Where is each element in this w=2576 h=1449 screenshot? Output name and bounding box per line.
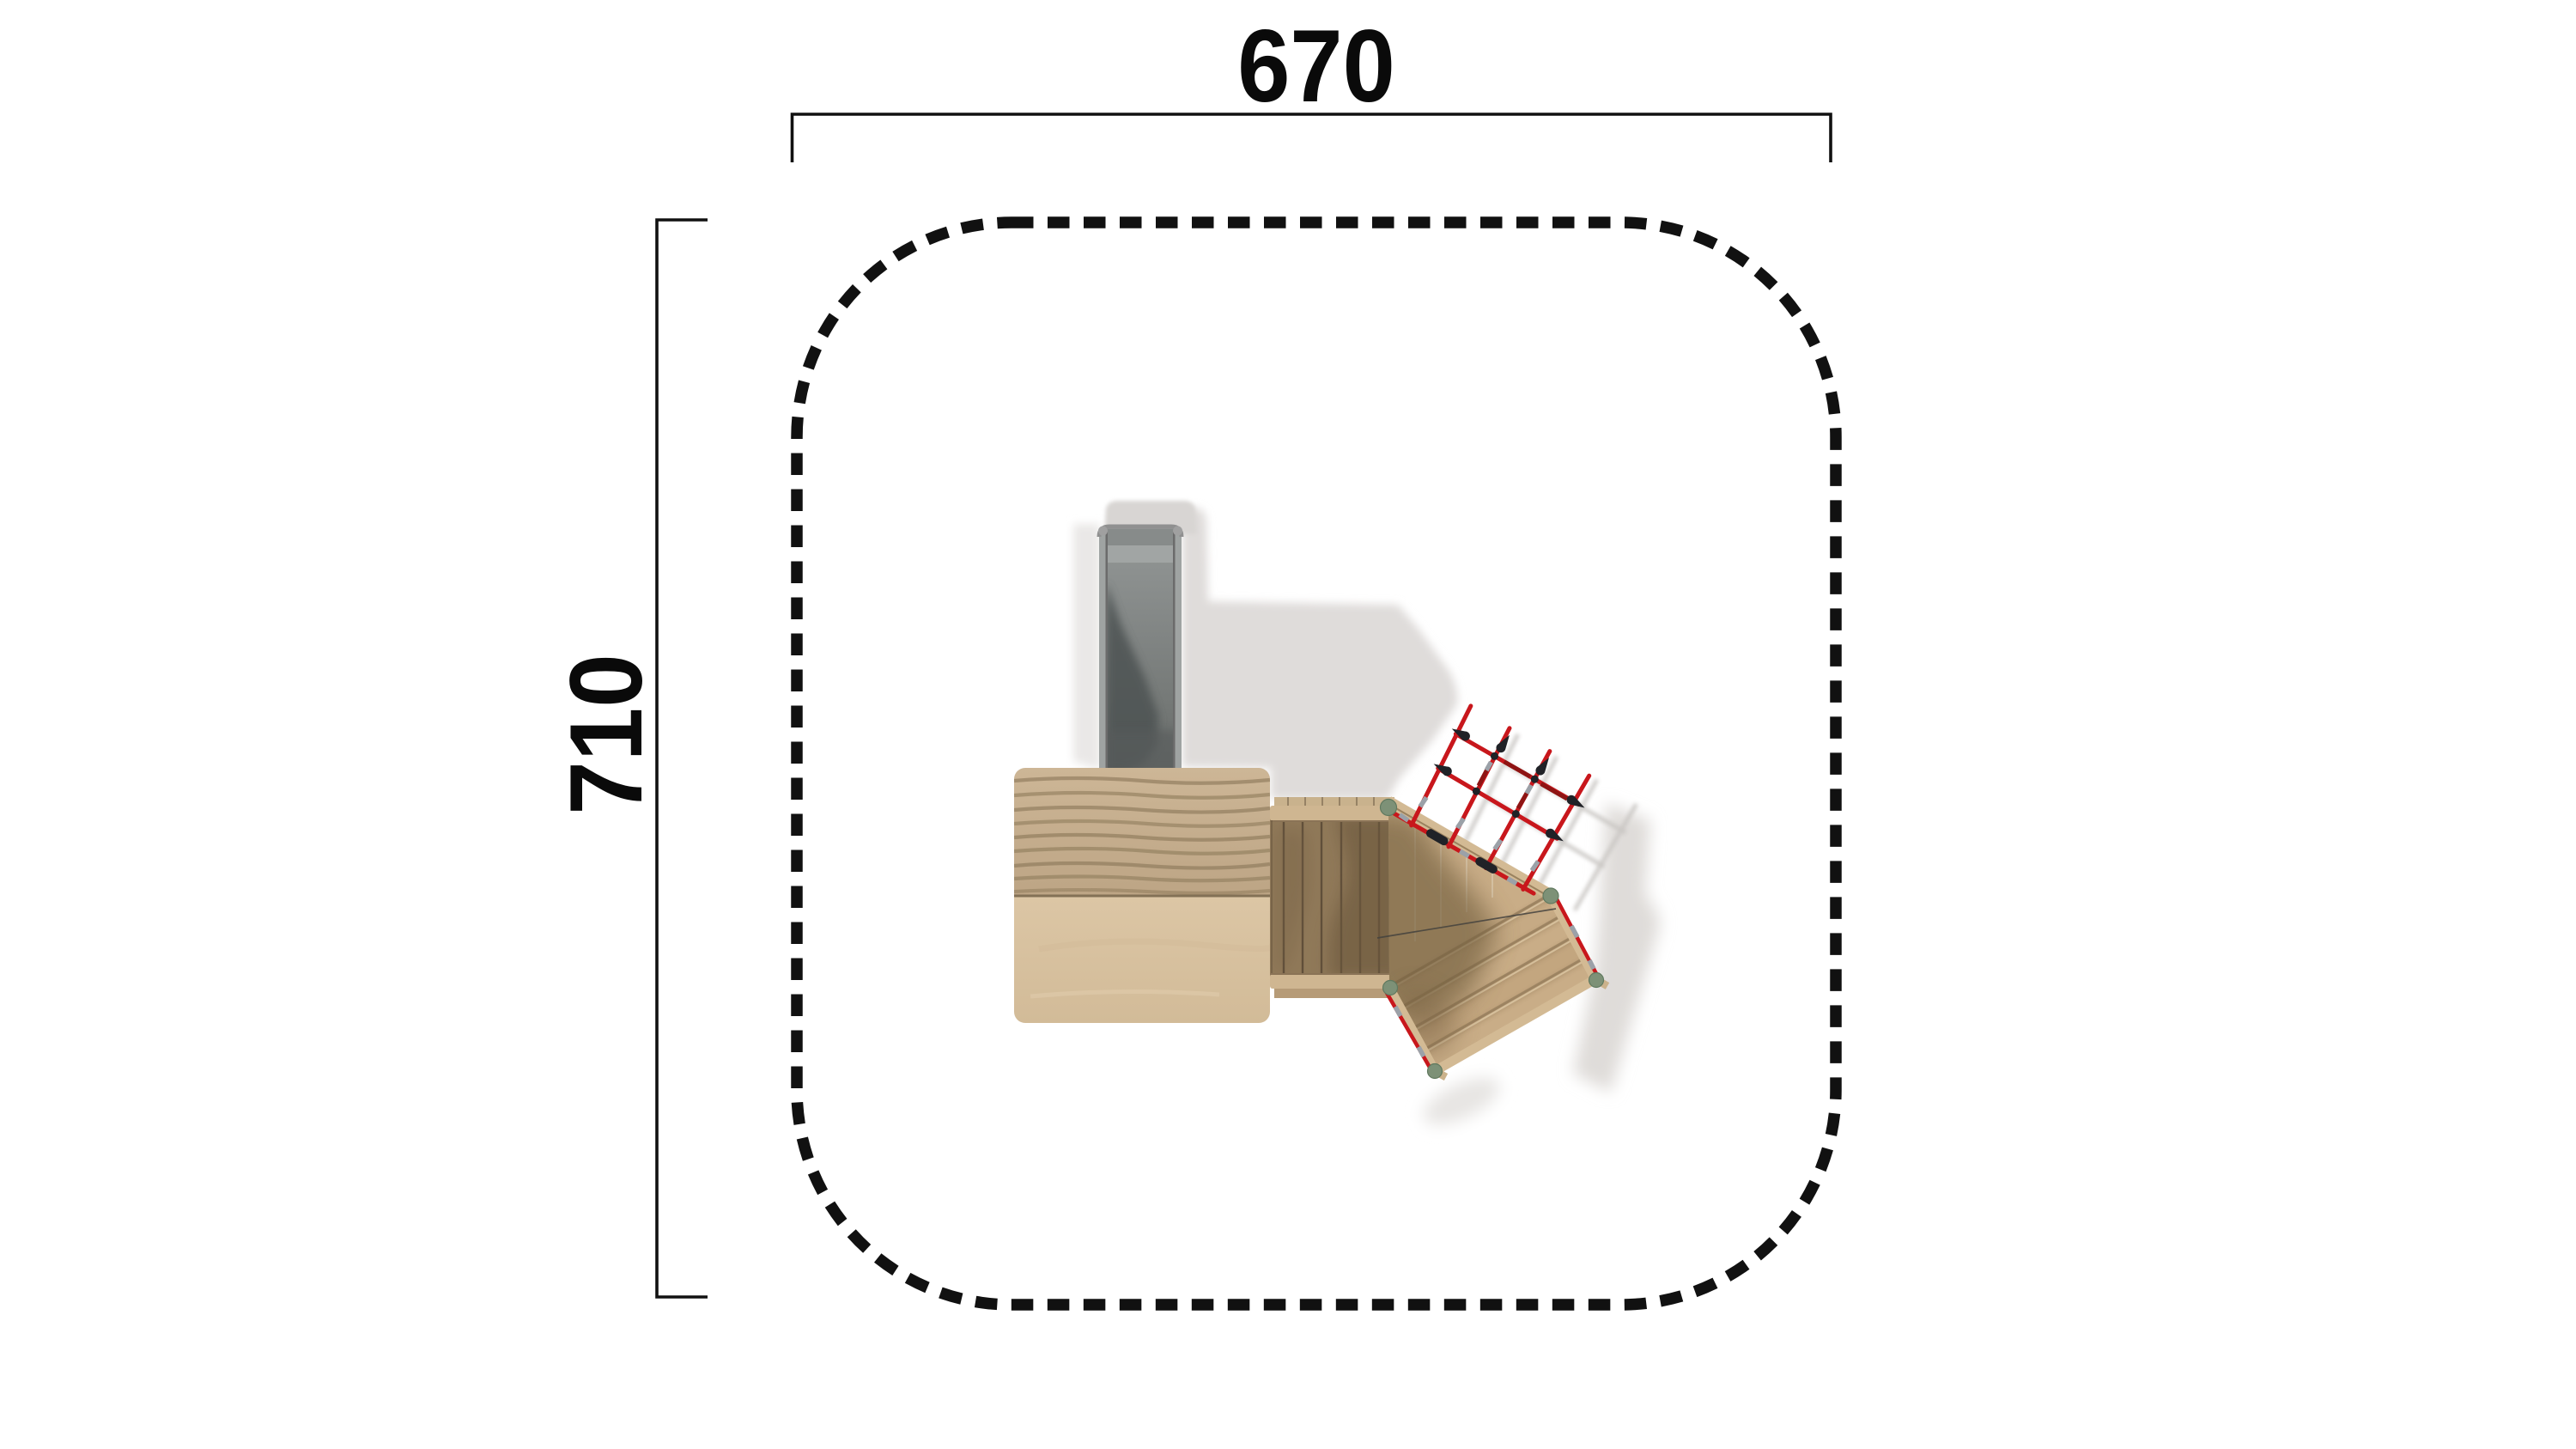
- svg-text:710: 710: [549, 654, 664, 815]
- svg-text:670: 670: [1237, 9, 1395, 124]
